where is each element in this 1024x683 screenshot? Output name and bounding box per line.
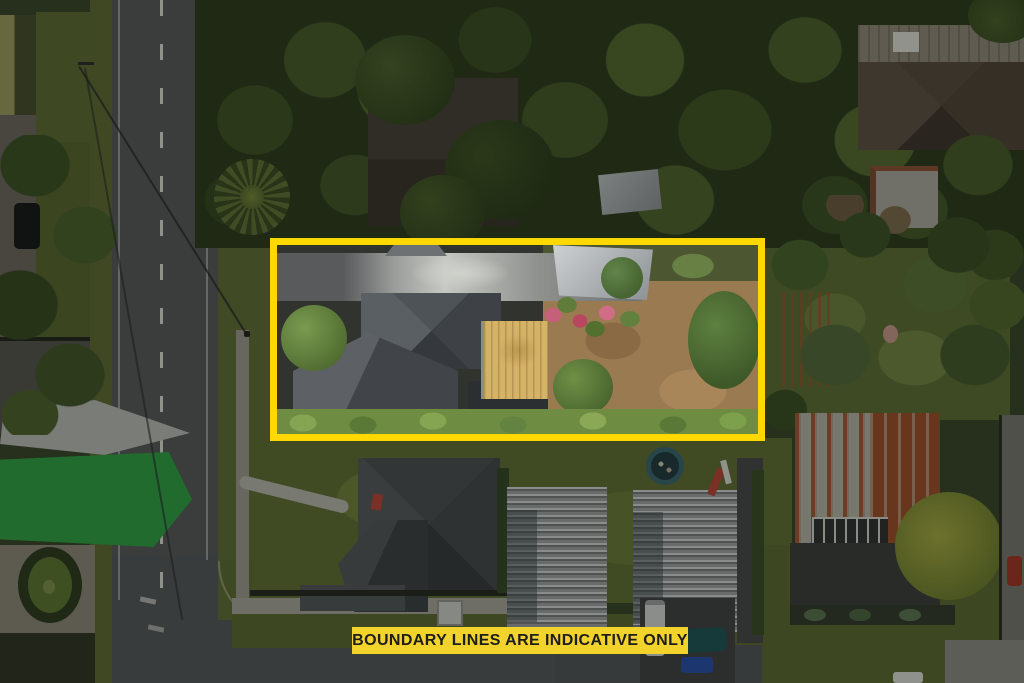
left-neighbor-roof [0,15,36,115]
ac-unit [437,600,463,626]
yellow-green-tree [895,492,1003,600]
hedge-driveway [752,470,764,635]
bottom-right-road [945,640,1024,683]
deck-white-table [893,32,919,52]
front-fence [250,590,520,596]
tree-over-roof [355,35,455,125]
power-pole [244,331,250,337]
garden-row [790,605,955,625]
left-hedge-bottom [0,633,95,683]
left-tree-group [0,135,120,435]
green-shade-sail [0,452,192,547]
power-pole [78,62,94,65]
palm-tree-center [240,185,264,209]
silver-roof-upper [598,169,662,215]
right-tree-column [928,125,1024,340]
left-neighbor-lawn [36,12,90,142]
footpath-vertical [236,330,249,602]
right-fence-line [999,415,1002,645]
car-blue [681,657,713,673]
car-red [1007,556,1022,586]
townhouse-1-wing [507,510,537,622]
front-house-porch [300,585,405,611]
garden-center-plant [43,580,55,594]
disclaimer-text: BOUNDARY LINES ARE INDICATIVE ONLY [352,632,688,650]
aerial-photo: BOUNDARY LINES ARE INDICATIVE ONLY [0,0,1024,683]
disclaimer-banner: BOUNDARY LINES ARE INDICATIVE ONLY [352,627,688,654]
pink-object [883,325,898,343]
boundary-outline [270,238,765,441]
window-band [812,517,888,543]
boat-teal [683,627,727,654]
car-white [893,672,923,683]
trampoline [646,447,684,485]
